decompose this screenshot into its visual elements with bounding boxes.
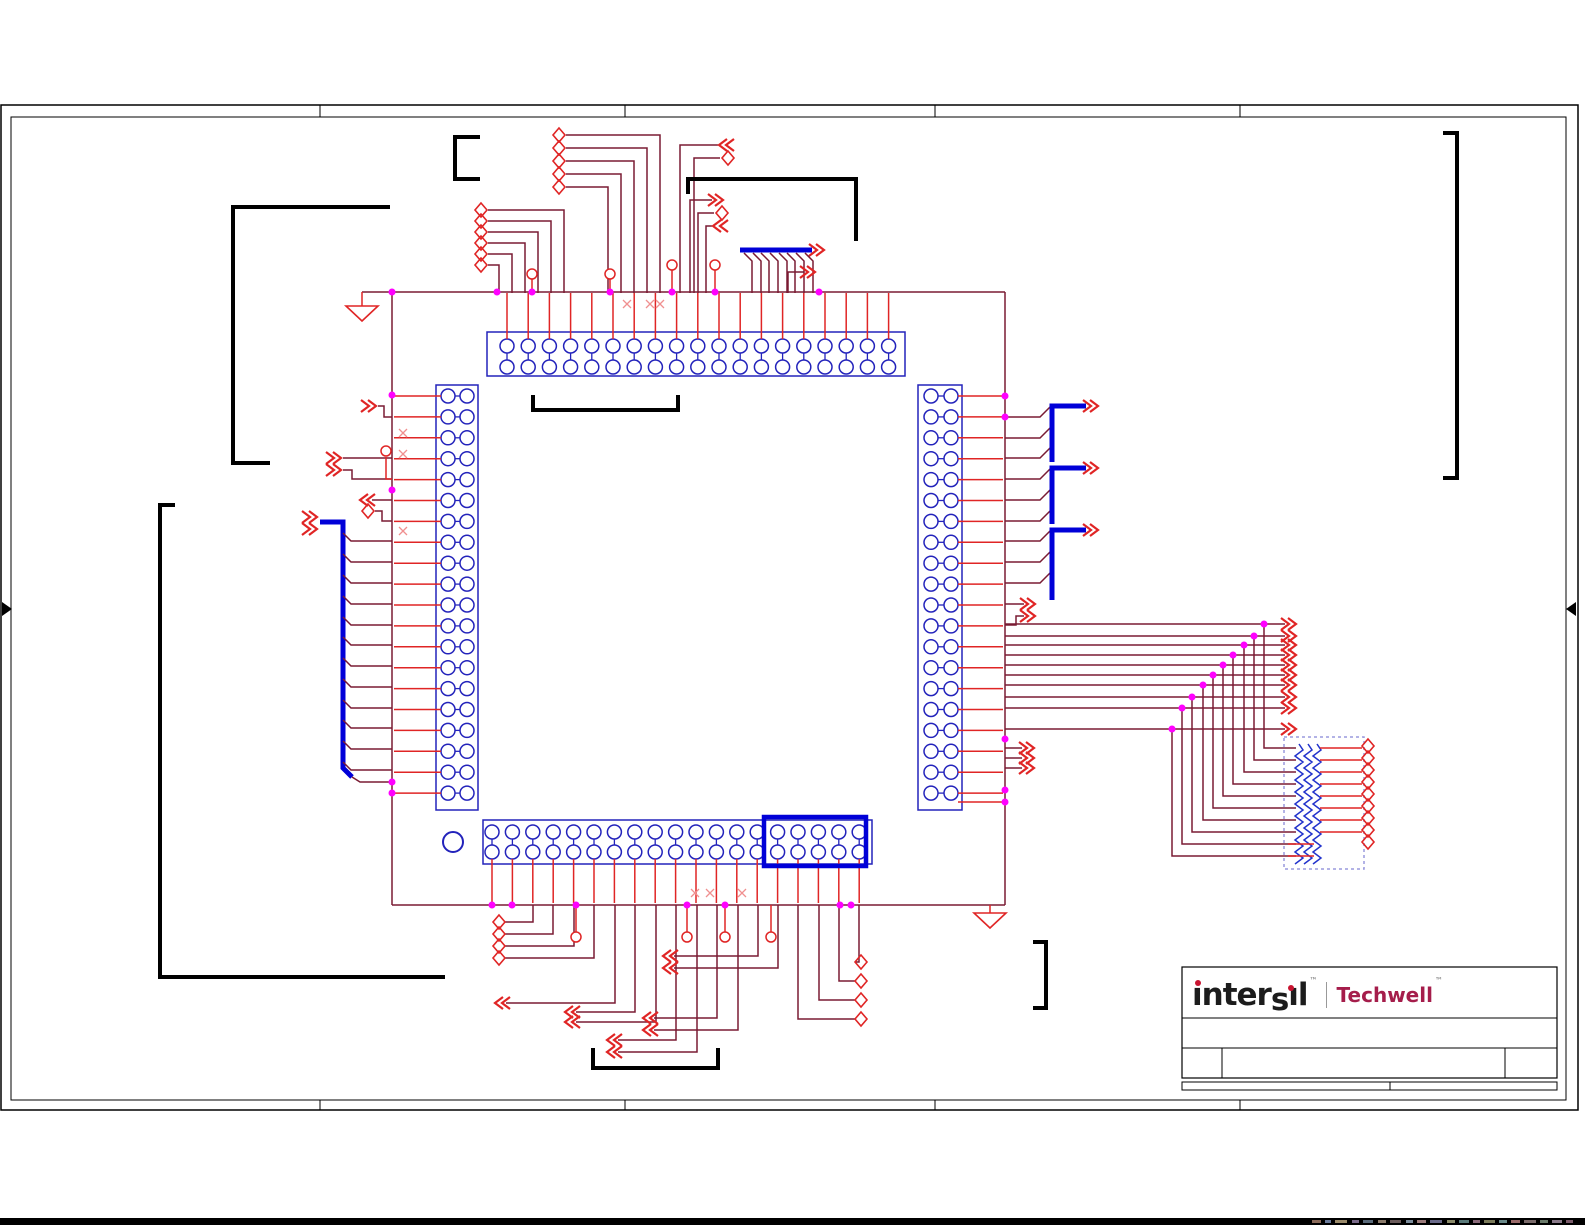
junction-dot — [684, 902, 691, 909]
pin-header-top-pin — [585, 360, 599, 374]
junction-dot — [1002, 787, 1009, 794]
junction-dot — [1189, 694, 1196, 701]
wire — [1005, 509, 1052, 521]
schematic-page: ıntersıl ™ Techwell ™ — [0, 0, 1585, 1225]
pin-header-bottom-pin — [546, 845, 560, 859]
pin-header-left-pin — [460, 431, 474, 445]
junction-dot — [389, 289, 396, 296]
wire — [779, 253, 787, 293]
pin-header-top-pin — [627, 339, 641, 353]
wire — [375, 511, 392, 521]
pin-header-bottom-pin — [669, 845, 683, 859]
logo-block: ıntersıl ™ Techwell ™ — [1192, 974, 1443, 1016]
techwell-logo: Techwell — [1337, 983, 1433, 1007]
pin-header-left-pin — [441, 577, 455, 591]
pin-header-top-pin — [564, 360, 578, 374]
nc-x-mark — [706, 889, 714, 897]
nc-x-mark — [399, 450, 407, 458]
pin-header-left-pin — [460, 410, 474, 424]
pin-header-top-pin — [712, 339, 726, 353]
pin-header-right-pin — [924, 640, 938, 654]
pin-header-right-pin — [924, 786, 938, 800]
wire — [343, 575, 392, 583]
resistor-zigzag — [1295, 744, 1303, 864]
nc-x-mark — [738, 889, 746, 897]
pin-header-top-pin — [521, 360, 535, 374]
wire — [505, 905, 553, 934]
stamp-text-fragment — [1540, 1220, 1548, 1223]
wire — [680, 145, 718, 293]
pin-header-top-pin — [733, 360, 747, 374]
stamp-text-fragment — [1417, 1220, 1426, 1223]
junction-dot — [1261, 621, 1268, 628]
stamp-text-fragment — [1459, 1220, 1469, 1223]
wire — [505, 905, 533, 922]
stamp-text-fragment — [1484, 1220, 1495, 1223]
wire — [343, 637, 392, 645]
pin-header-top-pin — [691, 339, 705, 353]
testpoint-circle — [571, 932, 581, 942]
pin-header-bottom-pin — [485, 845, 499, 859]
wire — [1005, 571, 1052, 583]
wire — [343, 658, 392, 666]
junction-dot — [1169, 726, 1176, 733]
stamp-text-fragment — [1352, 1220, 1359, 1223]
pin-header-top-pin — [606, 339, 620, 353]
pin-header-left-pin — [460, 473, 474, 487]
pin-header-bottom-pin — [526, 845, 540, 859]
wire — [753, 253, 761, 293]
pin-header-bottom-pin — [832, 825, 846, 839]
bottom-stamp-bar — [0, 1218, 1585, 1225]
wire — [1203, 685, 1296, 820]
junction-dot — [607, 289, 614, 296]
testpoint-circle — [605, 269, 615, 279]
pin-header-right-pin — [944, 640, 958, 654]
pin-header-bottom-pin — [791, 825, 805, 839]
junction-dot — [1002, 393, 1009, 400]
stamp-text-fragment — [1390, 1220, 1401, 1223]
pin-header-right-pin — [924, 556, 938, 570]
intersil-logo-pre: ınter — [1192, 977, 1271, 1013]
pin-header-top-pin — [500, 360, 514, 374]
intersil-logo-s: s — [1271, 985, 1288, 1016]
pin-header-left-pin — [460, 723, 474, 737]
junction-dot — [389, 790, 396, 797]
wire — [566, 161, 634, 293]
junction-dot — [1210, 672, 1217, 679]
junction-dot — [1179, 705, 1186, 712]
bus-left — [320, 522, 352, 777]
pin-header-right-pin — [924, 452, 938, 466]
pin-header-left-pin — [460, 556, 474, 570]
wire — [1005, 488, 1052, 500]
stamp-text-fragment — [1566, 1220, 1573, 1223]
wire — [819, 905, 855, 1000]
wire — [796, 253, 804, 293]
resistor-zigzag — [1313, 744, 1321, 864]
offpage-chevron — [302, 523, 317, 535]
testpoint-circle — [720, 932, 730, 942]
stamp-text-fragment — [1335, 1220, 1347, 1223]
junction-dot — [1230, 652, 1237, 659]
annotation-bracket — [533, 395, 678, 410]
pin-header-right-pin — [944, 765, 958, 779]
wire — [505, 905, 574, 946]
pin-header-right-pin — [944, 410, 958, 424]
pin-header-left-pin — [460, 640, 474, 654]
pin-header-left-pin — [441, 723, 455, 737]
pin-header-top-pin — [818, 360, 832, 374]
stamp-text-fragment — [1552, 1220, 1562, 1223]
pin-header-left-pin — [460, 661, 474, 675]
pin-header-right-pin — [924, 661, 938, 675]
pin-header-right-pin — [924, 598, 938, 612]
noconnect-diamond — [716, 206, 728, 220]
offpage-chevron — [361, 400, 376, 412]
pin-header-top-pin — [818, 339, 832, 353]
junction-dot — [816, 289, 823, 296]
pin-header-top-pin — [860, 360, 874, 374]
wire — [343, 596, 392, 604]
wire — [343, 470, 392, 479]
pin-header-right-pin — [924, 494, 938, 508]
pin-header-top-pin — [754, 339, 768, 353]
gnd-symbol-bottomright — [974, 913, 1006, 928]
wire — [343, 762, 392, 770]
pin-header-right-pin — [944, 556, 958, 570]
pin-header-left-pin — [441, 431, 455, 445]
wire — [1005, 529, 1052, 541]
nc-x-mark — [646, 300, 654, 308]
pin-header-left-pin — [441, 473, 455, 487]
pin-header-left-pin — [460, 535, 474, 549]
noconnect-diamond — [722, 151, 734, 165]
wire — [343, 700, 392, 708]
fiducial-circle — [443, 832, 463, 852]
wire — [343, 741, 392, 749]
pin-header-right-pin — [924, 703, 938, 717]
testpoint-circle — [527, 269, 537, 279]
pin-header-bottom-pin — [628, 845, 642, 859]
pin-header-left-pin — [460, 682, 474, 696]
pin-header-right-pin — [924, 619, 938, 633]
pin-header-left-pin — [441, 556, 455, 570]
wire — [343, 554, 392, 562]
pin-header-bottom-pin — [771, 825, 785, 839]
pin-header-left-pin — [441, 389, 455, 403]
pin-header-bottom-pin — [689, 845, 703, 859]
pin-header-bottom-pin — [669, 825, 683, 839]
junction-dot — [389, 779, 396, 786]
pin-header-left-pin — [441, 682, 455, 696]
wire — [488, 243, 525, 293]
wire — [654, 905, 717, 1018]
testpoint-circle — [667, 260, 677, 270]
pin-header-top-pin — [648, 360, 662, 374]
junction-dot — [722, 902, 729, 909]
noconnect-diamonds — [855, 993, 867, 1007]
wire — [839, 905, 855, 981]
wire — [343, 720, 392, 728]
pin-header-left-pin — [460, 619, 474, 633]
stamp-text-fragment — [1447, 1220, 1455, 1223]
wire — [744, 253, 752, 293]
junction-dot — [848, 902, 855, 909]
pin-header-right-pin — [924, 473, 938, 487]
wire — [798, 905, 855, 1019]
pin-header-right-pin — [924, 389, 938, 403]
pin-header-left-pin — [460, 514, 474, 528]
pin-header-right-pin — [944, 598, 958, 612]
wire — [352, 777, 392, 782]
nc-x-mark — [623, 300, 631, 308]
bus-right-2 — [1052, 468, 1086, 524]
wire — [706, 226, 712, 293]
pin-header-top-pin — [882, 339, 896, 353]
stamp-text-fragment — [1325, 1220, 1331, 1223]
junction-dot — [669, 289, 676, 296]
pin-header-top-pin — [500, 339, 514, 353]
title-block-strip — [1182, 1082, 1557, 1090]
bus-right-3 — [1052, 530, 1086, 600]
pin-header-top-pin — [839, 360, 853, 374]
annotation-bracket — [455, 137, 480, 179]
wire — [343, 617, 392, 625]
pin-header-left-pin — [460, 494, 474, 508]
pin-header-left-pin — [460, 577, 474, 591]
pin-header-top-pin — [564, 339, 578, 353]
stamp-text-fragment — [1363, 1220, 1373, 1223]
pin-header-top-pin — [670, 339, 684, 353]
trademark-symbol: ™ — [1310, 976, 1318, 985]
pin-header-left-pin — [460, 744, 474, 758]
intersil-logo: ıntersıl — [1192, 980, 1308, 1011]
nc-x-mark — [399, 527, 407, 535]
pin-header-right-pin — [944, 786, 958, 800]
junction-dot — [509, 902, 516, 909]
intersil-red-dot — [1195, 980, 1201, 986]
junction-dot — [837, 902, 844, 909]
stamp-text-fragment — [1406, 1220, 1413, 1223]
junction-dot — [1002, 414, 1009, 421]
pin-header-right-pin — [924, 744, 938, 758]
pin-header-right-pin — [944, 452, 958, 466]
pin-header-left-pin — [441, 410, 455, 424]
sheet-inner-border — [11, 117, 1566, 1100]
bus-right-1 — [1052, 406, 1086, 462]
pin-header-right-pin — [924, 431, 938, 445]
pin-header-left-pin — [460, 765, 474, 779]
wire — [1005, 446, 1052, 458]
pin-header-bottom-pin — [587, 845, 601, 859]
pin-header-right-pin — [944, 682, 958, 696]
wire — [855, 905, 859, 962]
annotation-bracket — [593, 1048, 718, 1068]
pin-header-top-pin — [882, 360, 896, 374]
pin-header-left-pin — [441, 640, 455, 654]
pin-header-right-pin — [944, 703, 958, 717]
noconnect-diamonds — [855, 974, 867, 988]
stamp-text-fragment — [1511, 1220, 1520, 1223]
testpoint-circle — [766, 932, 776, 942]
pin-header-top-pin — [797, 339, 811, 353]
pin-header-left-pin — [460, 598, 474, 612]
pin-header-top-pin — [776, 339, 790, 353]
pin-header-bottom-pin — [648, 825, 662, 839]
junction-dot — [389, 392, 396, 399]
stamp-text-fragment — [1473, 1220, 1480, 1223]
offpage-chevron — [326, 464, 341, 476]
wire — [566, 187, 608, 293]
wire — [343, 679, 392, 687]
noconnect-diamond — [362, 504, 374, 518]
pin-header-bottom-pin — [567, 825, 581, 839]
resistor-zigzag — [1304, 744, 1312, 864]
pin-header-bottom-pin — [546, 825, 560, 839]
stamp-text-fragment — [1312, 1220, 1321, 1223]
wire — [378, 406, 392, 417]
pin-header-top-pin — [606, 360, 620, 374]
pin-header-right-pin — [944, 723, 958, 737]
pin-header-left-pin — [441, 452, 455, 466]
pin-header-bottom-pin — [607, 825, 621, 839]
pin-header-top-pin — [691, 360, 705, 374]
junction-dot — [529, 289, 536, 296]
pin-header-bottom-pin — [689, 825, 703, 839]
pin-header-bottom-pin — [709, 845, 723, 859]
junction-dot — [1002, 799, 1009, 806]
gnd-symbol-topleft — [346, 306, 378, 321]
schematic-canvas — [0, 0, 1585, 1225]
wire — [1005, 467, 1052, 479]
pin-header-bottom-pin — [709, 825, 723, 839]
annotation-bracket — [688, 179, 856, 241]
pin-header-top-pin — [839, 339, 853, 353]
pin-header-bottom-pin — [587, 825, 601, 839]
wire — [488, 254, 512, 293]
pin-header-left-pin — [441, 494, 455, 508]
noconnect-diamonds — [855, 1012, 867, 1026]
pin-header-top-pin — [648, 339, 662, 353]
pin-header-bottom-pin — [628, 825, 642, 839]
pin-header-right-pin — [944, 619, 958, 633]
pin-header-top-pin — [670, 360, 684, 374]
junction-dot — [489, 902, 496, 909]
pin-header-top-pin — [712, 360, 726, 374]
offpage-chevron — [302, 511, 317, 523]
pin-header-top-pin — [797, 360, 811, 374]
offpage-chevron — [713, 220, 728, 232]
pin-header-bottom-pin — [505, 845, 519, 859]
pin-header-bottom-pin — [730, 845, 744, 859]
junction-dot — [1251, 633, 1258, 640]
pin-header-top-pin — [754, 360, 768, 374]
pin-header-top-pin — [521, 339, 535, 353]
junction-dot — [1200, 682, 1207, 689]
pin-header-bottom-pin — [485, 825, 499, 839]
intersil-logo-post: ıl — [1288, 977, 1307, 1013]
right-zone-arrow — [1566, 602, 1576, 616]
pin-header-bottom-pin — [526, 825, 540, 839]
wire — [1005, 550, 1052, 562]
annotation-bracket — [1033, 942, 1046, 1008]
pin-header-bottom-pin — [811, 825, 825, 839]
stamp-text-fragment — [1378, 1220, 1386, 1223]
stamp-text-fragment — [1430, 1220, 1442, 1223]
pin-header-right-pin — [924, 723, 938, 737]
testpoint-circle — [682, 932, 692, 942]
testpoint-stub — [386, 457, 392, 479]
pin-header-top-pin — [627, 360, 641, 374]
pin-header-bottom-pin — [791, 845, 805, 859]
wire — [343, 533, 392, 541]
pin-header-top-pin — [585, 339, 599, 353]
annotation-bracket — [1443, 133, 1457, 478]
wire — [788, 272, 804, 293]
junction-dot — [573, 902, 580, 909]
wire — [761, 253, 769, 293]
wire — [1005, 426, 1052, 438]
pin-header-right-pin — [944, 473, 958, 487]
pin-header-top-pin — [860, 339, 874, 353]
pin-header-bottom-pin — [730, 825, 744, 839]
pin-header-right-pin — [924, 514, 938, 528]
pin-header-left-pin — [441, 765, 455, 779]
junction-dot — [1241, 642, 1248, 649]
pin-header-top-pin — [542, 339, 556, 353]
junction-dot — [1220, 662, 1227, 669]
wire — [488, 232, 538, 293]
wire — [576, 905, 656, 1022]
stamp-text-fragment — [1499, 1220, 1507, 1223]
wire — [506, 905, 615, 1003]
annotation-bracket — [160, 505, 445, 977]
offpage-chevron — [719, 139, 734, 151]
pin-header-bottom-pin — [607, 845, 621, 859]
pin-header-left-pin — [460, 389, 474, 403]
pin-header-right-pin — [924, 682, 938, 696]
nc-x-mark — [691, 889, 699, 897]
wire — [770, 253, 778, 293]
pin-header-left-pin — [441, 661, 455, 675]
offpage-chevron — [326, 452, 341, 464]
pin-header-bottom-pin — [648, 845, 662, 859]
pin-header-left-pin — [460, 786, 474, 800]
pin-header-top-pin — [542, 360, 556, 374]
pin-header-top-pin — [733, 339, 747, 353]
pin-header-right-pin — [944, 494, 958, 508]
pin-header-right-pin — [944, 389, 958, 403]
pin-header-right-pin — [944, 577, 958, 591]
pin-header-left-pin — [441, 598, 455, 612]
intersil-red-dot — [1288, 985, 1294, 991]
testpoint-circle — [710, 260, 720, 270]
junction-dot — [389, 487, 396, 494]
pin-header-right-pin — [924, 535, 938, 549]
testpoint-circle — [381, 446, 391, 456]
pin-header-left-pin — [460, 703, 474, 717]
logo-divider — [1326, 982, 1327, 1008]
pin-header-right-pin — [924, 410, 938, 424]
pin-header-right-pin — [924, 765, 938, 779]
pin-header-left-pin — [441, 744, 455, 758]
nc-x-mark — [656, 300, 664, 308]
junction-dot — [712, 289, 719, 296]
pin-header-bottom-pin — [567, 845, 581, 859]
pin-header-left-pin — [441, 514, 455, 528]
pin-header-left-pin — [460, 452, 474, 466]
